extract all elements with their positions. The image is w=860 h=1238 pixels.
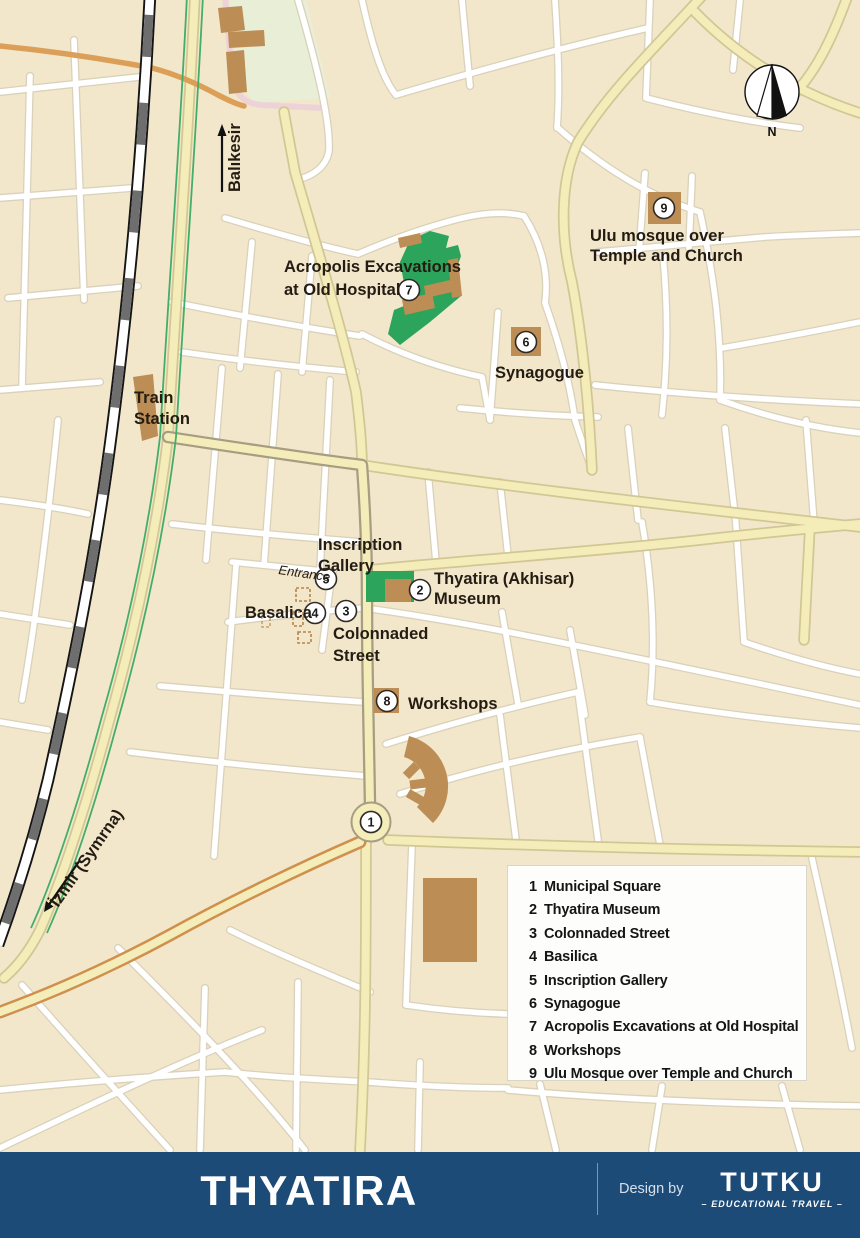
balikesir-label: Balıkesir	[218, 123, 245, 192]
tutku-tagline: – EDUCATIONAL TRAVEL –	[701, 1199, 843, 1209]
marker-9: 9	[654, 198, 675, 219]
legend-item: 8Workshops	[529, 1043, 798, 1066]
legend-item: 2Thyatira Museum	[529, 902, 798, 925]
svg-text:Museum: Museum	[434, 590, 501, 608]
svg-text:2: 2	[417, 584, 424, 598]
marker-3: 3	[336, 601, 357, 622]
svg-text:Station: Station	[134, 410, 190, 428]
svg-text:8: 8	[384, 695, 391, 709]
legend-item: 5Inscription Gallery	[529, 973, 798, 996]
basalica-label: Basalica	[245, 604, 313, 622]
acropolis-label: Acropolis Excavations	[284, 258, 461, 276]
legend-item: 6Synagogue	[529, 996, 798, 1019]
svg-text:3: 3	[343, 605, 350, 619]
workshops-label: Workshops	[408, 695, 498, 713]
svg-text:at Old Hospital: at Old Hospital	[284, 281, 400, 299]
svg-text:4: 4	[312, 607, 319, 621]
marker-1: 1	[361, 812, 382, 833]
svg-text:Temple and Church: Temple and Church	[590, 247, 743, 265]
museum-label: Thyatira (Akhisar)	[434, 570, 574, 588]
legend-item: 9Ulu Mosque over Temple and Church	[529, 1066, 798, 1089]
inscription-gallery-label: Inscription	[318, 536, 402, 554]
marker-6: 6	[516, 332, 537, 353]
map-title: THYATIRA	[0, 1167, 618, 1215]
synagogue-label: Synagogue	[495, 364, 584, 382]
ulu-mosque-label: Ulu mosque over	[590, 227, 724, 245]
marker-2: 2	[410, 580, 431, 601]
footer-divider	[597, 1163, 598, 1215]
municipal-building	[423, 878, 477, 962]
legend-item: 3Colonnaded Street	[529, 926, 798, 949]
legend-item: 7Acropolis Excavations at Old Hospital	[529, 1019, 798, 1042]
svg-text:Balıkesir: Balıkesir	[226, 123, 244, 192]
legend-item: 1Municipal Square	[529, 879, 798, 902]
museum-building	[385, 579, 411, 602]
train-station-label: Train	[134, 389, 173, 407]
design-by-label: Design by	[619, 1181, 683, 1197]
tutku-wordmark: TUTKU	[720, 1169, 824, 1196]
footer-bar: THYATIRA Design by TUTKU – EDUCATIONAL T…	[0, 1152, 860, 1238]
tutku-logo: TUTKU – EDUCATIONAL TRAVEL –	[701, 1169, 843, 1209]
svg-text:6: 6	[523, 336, 530, 350]
svg-text:7: 7	[406, 284, 413, 298]
svg-text:N: N	[767, 125, 776, 139]
marker-7: 7	[399, 280, 420, 301]
svg-text:1: 1	[368, 816, 375, 830]
thyatira-map-page: 1 2 3 4 5 6 7 8 9 Balıkesir İzmir (Symrn…	[0, 0, 860, 1238]
legend-box: 1Municipal Square 2Thyatira Museum 3Colo…	[507, 865, 807, 1081]
legend-item: 4Basilica	[529, 949, 798, 972]
marker-8: 8	[377, 691, 398, 712]
svg-text:Street: Street	[333, 647, 380, 665]
footer-credit: Design by TUTKU – EDUCATIONAL TRAVEL –	[619, 1152, 843, 1226]
svg-text:9: 9	[661, 202, 668, 216]
colonnaded-street-label: Colonnaded	[333, 625, 428, 643]
